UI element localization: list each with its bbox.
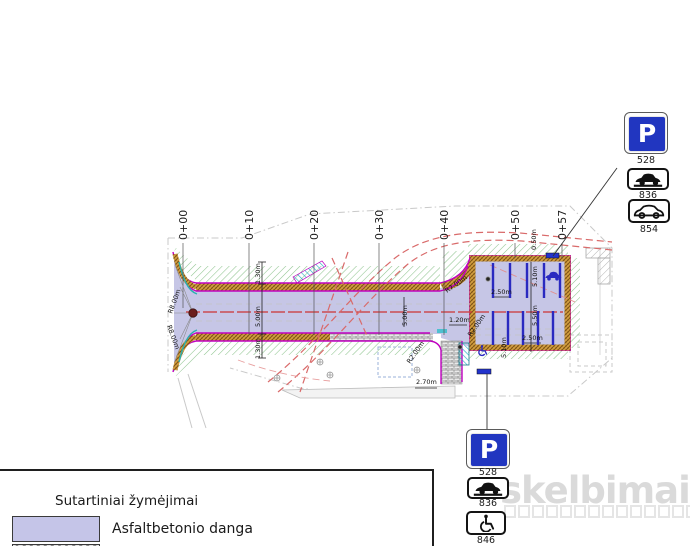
watermark-text: skelbimai.lt xyxy=(500,472,690,509)
dim-label: 5.10m xyxy=(500,337,508,358)
wheelchair-icon xyxy=(477,514,495,532)
tab-sign-car xyxy=(467,477,509,499)
station-label: 0+00 xyxy=(177,210,190,240)
car-on-kerb-icon xyxy=(632,172,664,187)
tab-sign-wheelchair xyxy=(466,511,506,535)
dim-label: 1.20m xyxy=(449,316,470,324)
parking-letter: P xyxy=(480,437,498,462)
car-on-kerb-icon xyxy=(472,481,504,496)
sign-code: 846 xyxy=(464,535,508,546)
dim-label: 1.30m xyxy=(254,263,262,284)
station-label: 0+30 xyxy=(373,210,386,240)
dim-label: 1.30m xyxy=(254,338,262,359)
parking-sign-face: P xyxy=(470,433,508,467)
dim-label: 0.50m xyxy=(530,229,538,250)
dim-label: 5.10m xyxy=(531,266,539,287)
dim-label: 2.50m xyxy=(491,288,512,296)
site-plan-screenshot: 0+00 0+10 0+20 0+30 0+40 0+50 0+57 1.30m… xyxy=(0,0,690,546)
sign-code: 854 xyxy=(627,224,671,235)
legend-box: Sutartiniai žymėjimai Asfaltbetonio dang… xyxy=(0,469,434,546)
dim-label: 2.50m xyxy=(522,334,543,342)
station-label: 0+57 xyxy=(556,210,569,240)
dim-label: 2.70m xyxy=(416,378,437,386)
parking-sign: P xyxy=(466,429,510,469)
sign-code: 836 xyxy=(466,498,510,509)
dim-label: 5.00m xyxy=(401,305,409,326)
parking-sign: P xyxy=(624,112,668,154)
car-outline-icon xyxy=(633,203,665,219)
station-label: 0+40 xyxy=(438,210,451,240)
plan-drawing: 0+00 0+10 0+20 0+30 0+40 0+50 0+57 1.30m… xyxy=(150,160,620,430)
station-labels: 0+00 0+10 0+20 0+30 0+40 0+50 0+57 xyxy=(177,210,569,240)
parking-sign-face: P xyxy=(628,116,666,152)
dim-label: 5.00m xyxy=(254,306,262,327)
station-label: 0+20 xyxy=(308,210,321,240)
watermark: skelbimai.lt xyxy=(500,472,690,518)
sign-code: 528 xyxy=(624,155,668,166)
station-label: 0+50 xyxy=(509,210,522,240)
station-label: 0+10 xyxy=(243,210,256,240)
dim-label: 5.50m xyxy=(531,305,539,326)
tab-sign-car-outline xyxy=(628,199,670,223)
legend-title: Sutartiniai žymėjimai xyxy=(55,493,198,509)
watermark-squares xyxy=(504,505,690,518)
parking-letter: P xyxy=(638,121,656,146)
tab-sign-car xyxy=(627,168,669,190)
legend-swatch-asphalt xyxy=(12,516,100,542)
legend-item-label: Asfaltbetonio danga xyxy=(112,521,253,537)
